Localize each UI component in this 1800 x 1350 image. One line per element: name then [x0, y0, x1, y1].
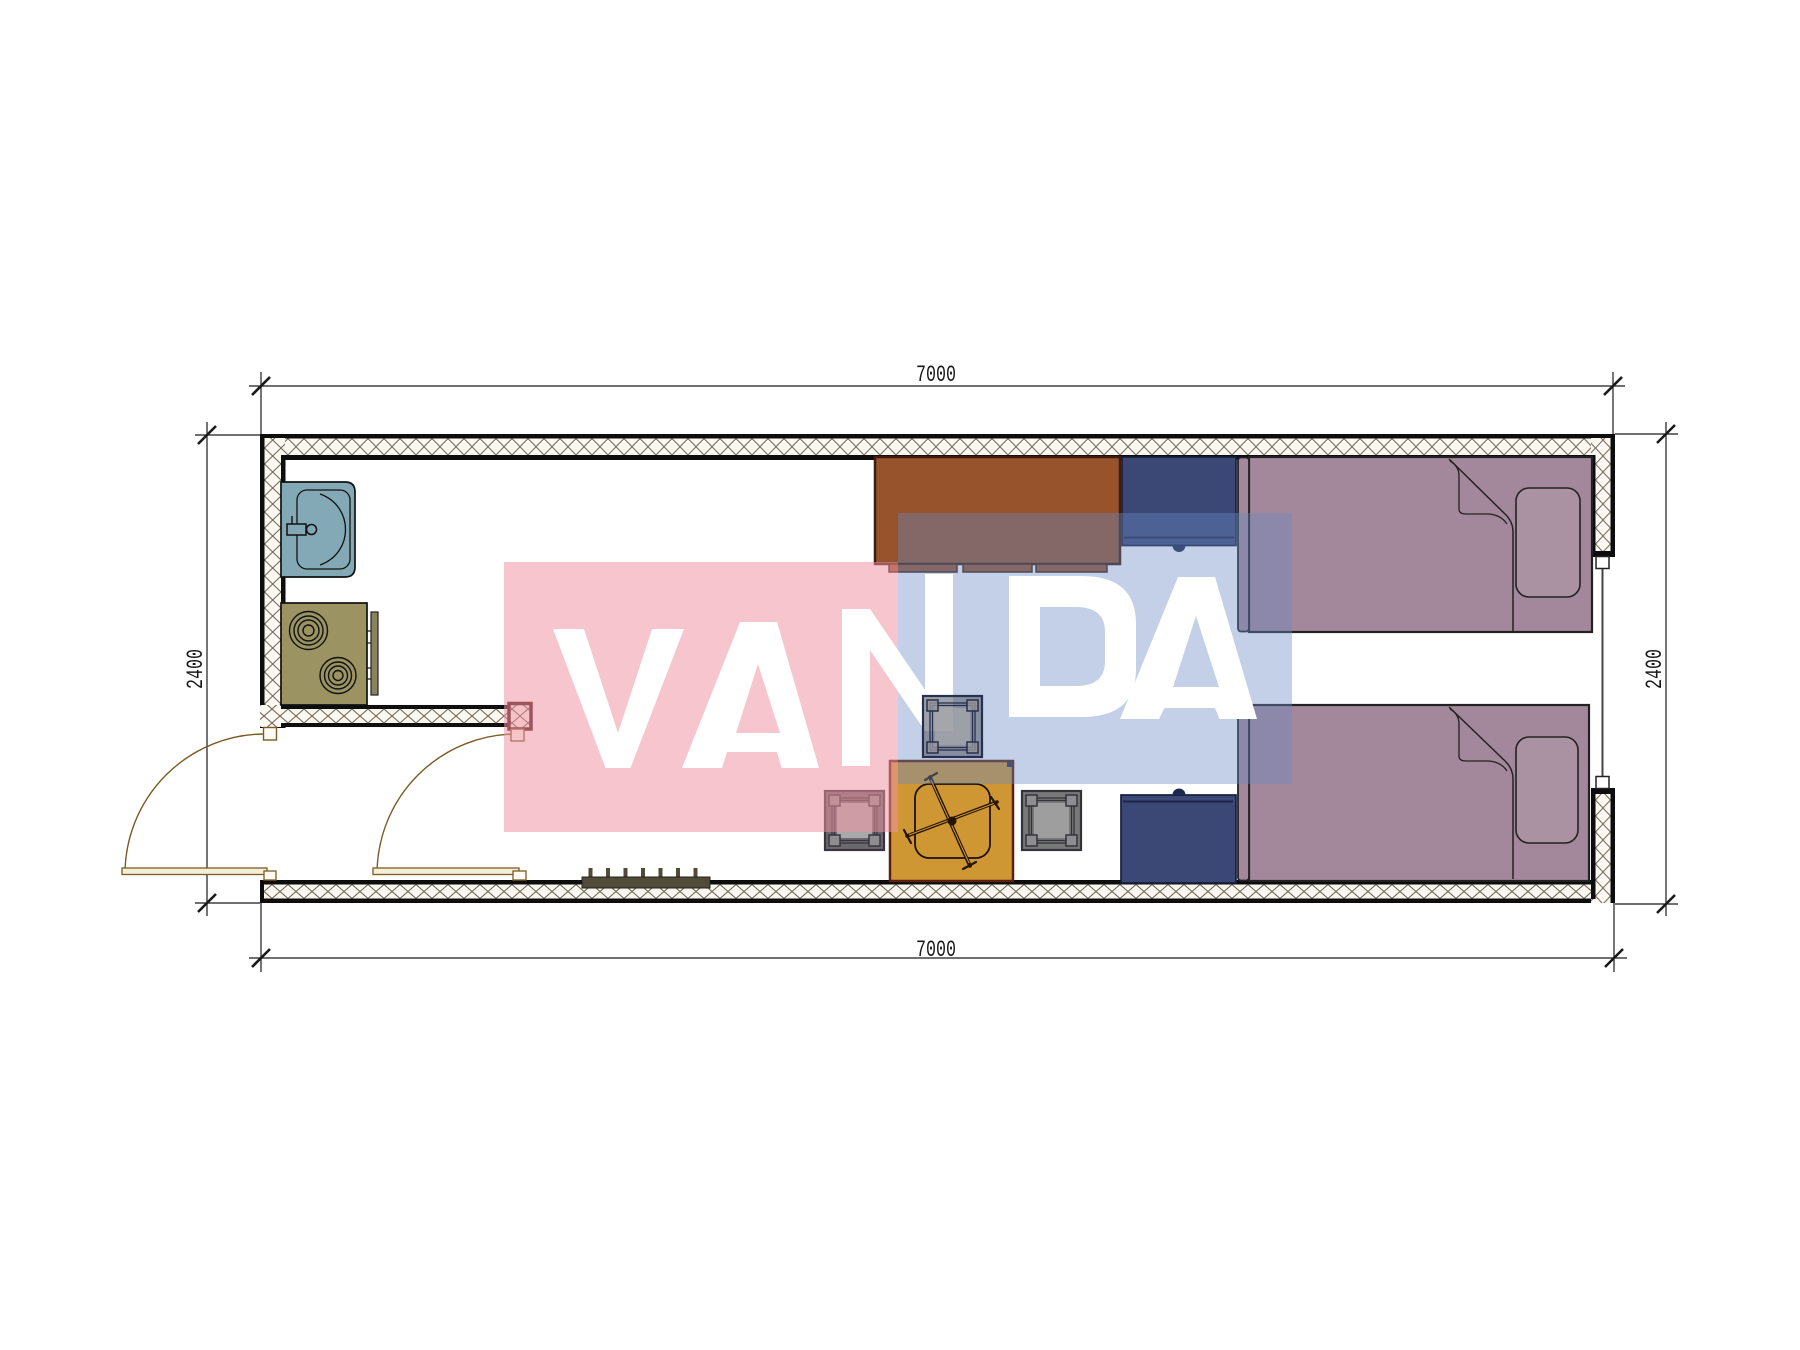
svg-text:7000: 7000	[916, 937, 956, 963]
svg-text:2400: 2400	[183, 649, 209, 689]
svg-text:7000: 7000	[916, 362, 956, 388]
svg-text:2400: 2400	[1642, 649, 1668, 689]
